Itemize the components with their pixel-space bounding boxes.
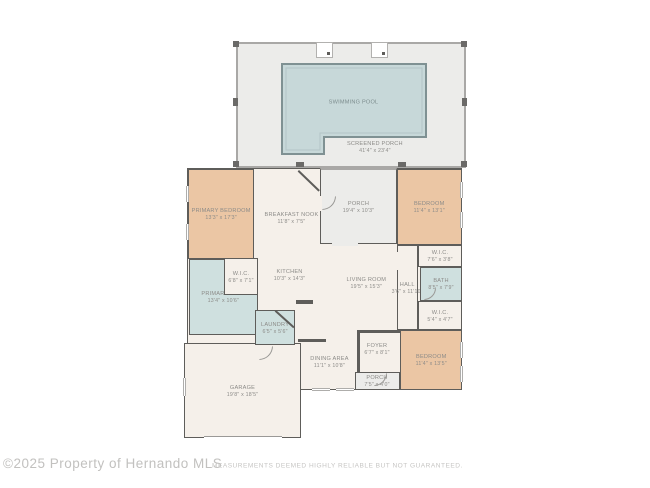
room-dims: 5'4" x 4'7" xyxy=(427,316,452,323)
window xyxy=(183,378,186,396)
window xyxy=(460,212,463,228)
room-dims: 19'8" x 18'5" xyxy=(227,391,259,398)
porch-column-tick xyxy=(233,41,239,47)
room-dims: 13'3" x 17'3" xyxy=(192,214,251,221)
room-dims: 19'4" x 10'3" xyxy=(343,207,375,214)
room-bedroom-bottom: BEDROOM 11'4" x 13'5" xyxy=(400,330,462,390)
room-dims: 7'6" x 3'8" xyxy=(427,256,452,263)
room-dims: 6'8" x 7'1" xyxy=(228,277,253,284)
room-wic-top-right: W.I.C. 7'6" x 3'8" xyxy=(418,245,462,267)
wall-stub xyxy=(357,330,360,372)
room-wic-lower-right: W.I.C. 5'4" x 4'7" xyxy=(418,301,462,330)
room-laundry: LAUNDRY 6'5" x 5'6" xyxy=(255,310,295,345)
garage-door xyxy=(204,436,282,439)
porch-column-tick xyxy=(461,161,467,167)
window xyxy=(460,182,463,198)
porch-column-tick xyxy=(462,98,467,106)
room-dims: 19'5" x 15'3" xyxy=(346,283,386,290)
room-dims: 41'4" x 23'4" xyxy=(347,147,403,154)
room-dims: 13'4" x 10'6" xyxy=(202,297,246,304)
room-living-room: LIVING ROOM 19'5" x 15'3" xyxy=(336,274,396,292)
hall-opening xyxy=(396,252,399,270)
pool-label: SWIMMING POOL xyxy=(296,96,412,108)
window xyxy=(336,388,354,391)
porch-column-tick xyxy=(398,162,406,167)
room-foyer: FOYER 6'7" x 8'1" xyxy=(352,340,402,358)
room-label: SWIMMING POOL xyxy=(329,98,379,105)
copyright-watermark: ©2025 Property of Hernando MLS xyxy=(3,456,222,471)
room-dims: 6'7" x 8'1" xyxy=(364,349,389,356)
room-label: GARAGE xyxy=(227,384,259,391)
room-dims: 11'8" x 7'5" xyxy=(264,218,318,225)
porch-post xyxy=(316,42,333,58)
room-kitchen: KITCHEN 10'3" x 14'3" xyxy=(262,266,318,284)
room-dining-area: DINING AREA 11'1" x 10'8" xyxy=(298,353,360,371)
room-label: PORCH xyxy=(343,200,375,207)
room-label: HALL xyxy=(392,281,423,288)
room-hall: HALL 3'6" x 11'10" xyxy=(397,245,418,330)
room-label: W.I.C. xyxy=(228,270,253,277)
room-dims: 6'5" x 5'6" xyxy=(261,328,289,335)
window xyxy=(186,186,189,202)
porch-column-tick xyxy=(233,98,238,106)
sliding-door-gap xyxy=(332,243,358,246)
room-garage: GARAGE 19'8" x 18'5" xyxy=(184,343,301,438)
wall-stub xyxy=(357,330,400,333)
measurement-disclaimer: MEASUREMENTS DEEMED HIGHLY RELIABLE BUT … xyxy=(212,462,463,469)
porch-column-tick xyxy=(233,161,239,167)
room-primary-bedroom: PRIMARY BEDROOM 13'3" x 17'3" xyxy=(188,169,254,259)
window xyxy=(460,366,463,382)
kitchen-island xyxy=(296,300,313,304)
room-wic-left: W.I.C. 6'8" x 7'1" xyxy=(224,258,258,295)
porch-column-tick xyxy=(296,162,304,167)
porch-post xyxy=(371,42,388,58)
room-dims: 10'3" x 14'3" xyxy=(274,275,306,282)
window xyxy=(312,388,330,391)
floor-plan-image: SWIMMING POOL SCREENED PORCH 41'4" x 23'… xyxy=(0,0,650,488)
room-dims: 11'4" x 13'5" xyxy=(415,360,446,367)
room-label: W.I.C. xyxy=(427,309,452,316)
room-dims: 11'1" x 10'8" xyxy=(310,362,348,369)
window xyxy=(460,342,463,358)
room-breakfast-nook: BREAKFAST NOOK 11'8" x 7'5" xyxy=(256,209,326,227)
porch-column-tick xyxy=(461,41,467,47)
room-dims: 11'4" x 13'1" xyxy=(414,207,445,214)
room-bedroom-top: BEDROOM 11'4" x 13'1" xyxy=(397,169,462,245)
window xyxy=(186,224,189,240)
room-label: LAUNDRY xyxy=(261,321,289,328)
room-dims: 3'6" x 11'10" xyxy=(392,288,423,295)
screened-porch-label: SCREENED PORCH 41'4" x 23'4" xyxy=(332,137,418,157)
wall-stub xyxy=(298,339,326,342)
